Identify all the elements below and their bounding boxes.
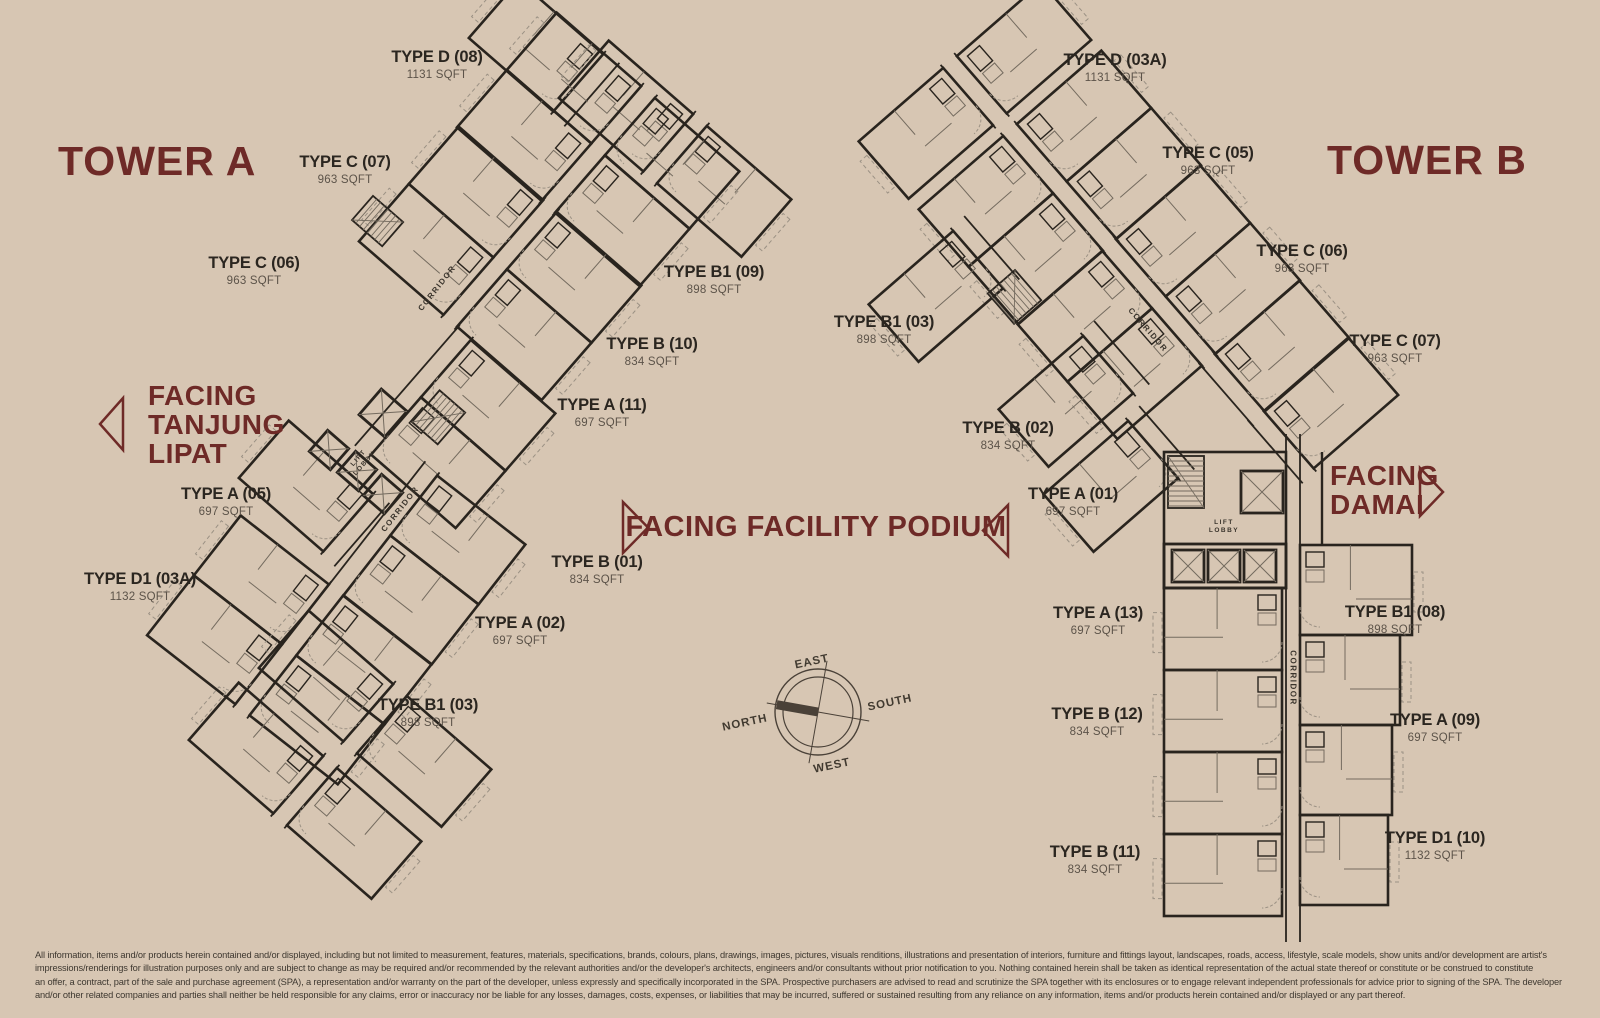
unit-label-a-type-c-07: TYPE C (07)963 SQFT <box>299 153 390 186</box>
facing-damai-label: FACING DAMAI <box>1330 461 1439 519</box>
unit-label-b-type-b1-03: TYPE B1 (03)898 SQFT <box>834 313 934 346</box>
unit-label-a-type-b1-03: TYPE B1 (03)898 SQFT <box>378 696 478 729</box>
unit-label-b-type-d-03a: TYPE D (03A)1131 SQFT <box>1063 51 1166 84</box>
unit-label-a-type-a-02: TYPE A (02)697 SQFT <box>475 614 565 647</box>
unit-label-b-type-c-07: TYPE C (07)963 SQFT <box>1349 332 1440 365</box>
unit-label-b-type-a-01: TYPE A (01)697 SQFT <box>1028 485 1118 518</box>
tower-b-corridor-lower-label: CORRIDOR <box>1289 650 1298 706</box>
unit-label-a-type-b-01: TYPE B (01)834 SQFT <box>551 553 642 586</box>
unit-label-a-type-d-08: TYPE D (08)1131 SQFT <box>391 48 482 81</box>
facing-tanjung-lipat-label: FACING TANJUNG LIPAT <box>148 381 285 468</box>
unit-label-b-type-b-12: TYPE B (12)834 SQFT <box>1051 705 1142 738</box>
facing-tanjung-lipat-arrow-icon <box>100 398 123 450</box>
unit-label-b-type-a-13: TYPE A (13)697 SQFT <box>1053 604 1143 637</box>
unit-label-b-type-b-02: TYPE B (02)834 SQFT <box>962 419 1053 452</box>
unit-label-a-type-d1-03a: TYPE D1 (03A)1132 SQFT <box>84 570 196 603</box>
compass-icon <box>767 661 869 763</box>
unit-label-b-type-b-11: TYPE B (11)834 SQFT <box>1050 843 1140 876</box>
floorplan-brochure: TOWER A TOWER B TYPE D (08)1131 SQFT TYP… <box>0 0 1600 1018</box>
facing-facility-podium-label: FACING FACILITY PODIUM <box>625 513 1006 542</box>
tower-b-lift-lobby-label: LIFTLOBBY <box>1209 519 1239 535</box>
unit-label-a-type-b-10: TYPE B (10)834 SQFT <box>606 335 697 368</box>
unit-label-a-type-a-05: TYPE A (05)697 SQFT <box>181 485 271 518</box>
unit-label-a-type-c-06: TYPE C (06)963 SQFT <box>208 254 299 287</box>
unit-label-b-type-d1-10: TYPE D1 (10)1132 SQFT <box>1385 829 1485 862</box>
unit-label-a-type-b1-09: TYPE B1 (09)898 SQFT <box>664 263 764 296</box>
unit-label-b-type-b1-08: TYPE B1 (08)898 SQFT <box>1345 603 1445 636</box>
unit-label-a-type-a-11: TYPE A (11)697 SQFT <box>557 396 646 429</box>
tower-a-title: TOWER A <box>58 138 256 185</box>
unit-label-b-type-c-06: TYPE C (06)963 SQFT <box>1256 242 1347 275</box>
unit-label-b-type-c-05: TYPE C (05)963 SQFT <box>1162 144 1253 177</box>
tower-b-title: TOWER B <box>1327 137 1527 184</box>
disclaimer-text: All information, items and/or products h… <box>35 949 1562 1003</box>
unit-label-b-type-a-09: TYPE A (09)697 SQFT <box>1390 711 1480 744</box>
